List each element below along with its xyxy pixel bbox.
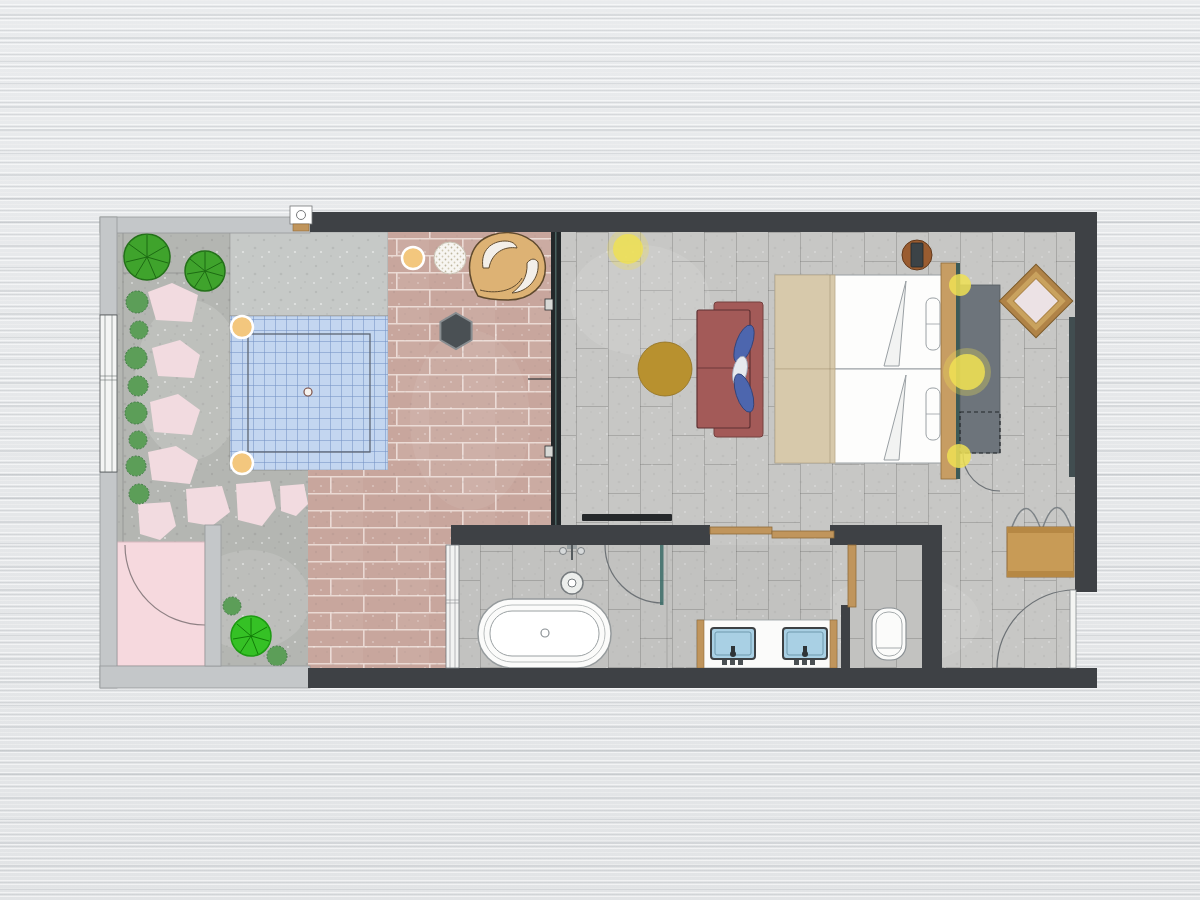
control-knob [802,660,807,665]
control-knob [730,660,735,665]
glass-wall-clamp [545,299,553,310]
gate-panel [100,315,117,472]
terrace-wash [135,300,245,460]
pool-stool [231,452,253,474]
bathroom-window [446,545,459,668]
pool-drain [304,388,312,396]
twin-beds [775,275,945,463]
faucet [730,651,736,657]
control-knob [722,660,727,665]
bathroom-wall-north [451,525,710,545]
wc-wall-west [841,605,850,668]
shrub [126,456,146,476]
lounge-chair [470,233,546,300]
wall-panel [1069,317,1076,477]
filler-handle [578,548,585,555]
shrub [223,597,241,615]
shower-glass-door [660,545,664,605]
wc-sliding-door [848,545,856,607]
outdoor-shower-room [117,542,205,666]
filler-handle [560,548,567,555]
terrace-wall-left-upper [100,217,117,315]
faucet [802,651,808,657]
sofa [697,302,763,437]
bench-edge [1007,571,1074,577]
double-vanity [697,620,837,668]
control-knob [810,660,815,665]
shrub [130,321,148,339]
terrace-wall-top [100,217,310,233]
floor-plan [0,0,1200,900]
wall-right [1075,212,1097,592]
garden-gate [100,315,117,472]
shrub [129,484,149,504]
vanity-wood-edge [830,620,837,668]
bedside-tray [911,243,923,267]
wall-light [949,274,971,296]
entry-door-leaf [1070,590,1076,668]
fixture-sill [293,224,309,231]
deck-stool [402,247,424,269]
shrub [128,376,148,396]
deck-wash [410,330,530,510]
shrub [129,431,147,449]
fixture-ring [297,211,306,220]
glass-wall-glazing [555,232,557,525]
coffee-table [638,342,692,396]
ceiling-light [613,234,643,264]
shower-head-center [568,579,576,587]
wall-top [310,212,1097,232]
terrace-wall-left-lower [100,472,117,688]
shrub [125,347,147,369]
shower-room-wall [205,525,221,666]
wall-light [949,354,985,390]
vanity-wood-edge [697,620,704,668]
toilet [872,608,906,660]
wall-bottom [308,668,1097,688]
bathtub [478,599,611,668]
shrub [267,646,287,666]
bed-2-blanket [775,369,835,463]
bathroom [459,543,837,668]
sliding-wood-door [710,527,772,534]
wall-light [947,444,971,468]
luggage-bench-top [1007,527,1074,577]
wall-fixture [290,206,312,231]
toilet-bowl [872,608,906,660]
bathtub-basin [490,611,599,656]
sliding-wood-door [772,531,834,538]
shrub [125,402,147,424]
bench-edge [1007,527,1074,533]
shrub [126,291,148,313]
control-knob [738,660,743,665]
window-frame [446,545,459,668]
pool-stool [231,316,253,338]
brushed-metal-background [0,0,1200,900]
control-knob [794,660,799,665]
glass-wall-clamp [545,446,553,457]
pool-deck-texture [230,232,388,316]
terrace-wall-bottom [100,666,310,688]
hexagon-side-table [440,313,471,349]
tv [582,514,672,521]
wc-wall-east [922,525,942,668]
wc-room [849,545,922,668]
rattan-weave [435,243,465,273]
bed-1-blanket [775,275,835,369]
